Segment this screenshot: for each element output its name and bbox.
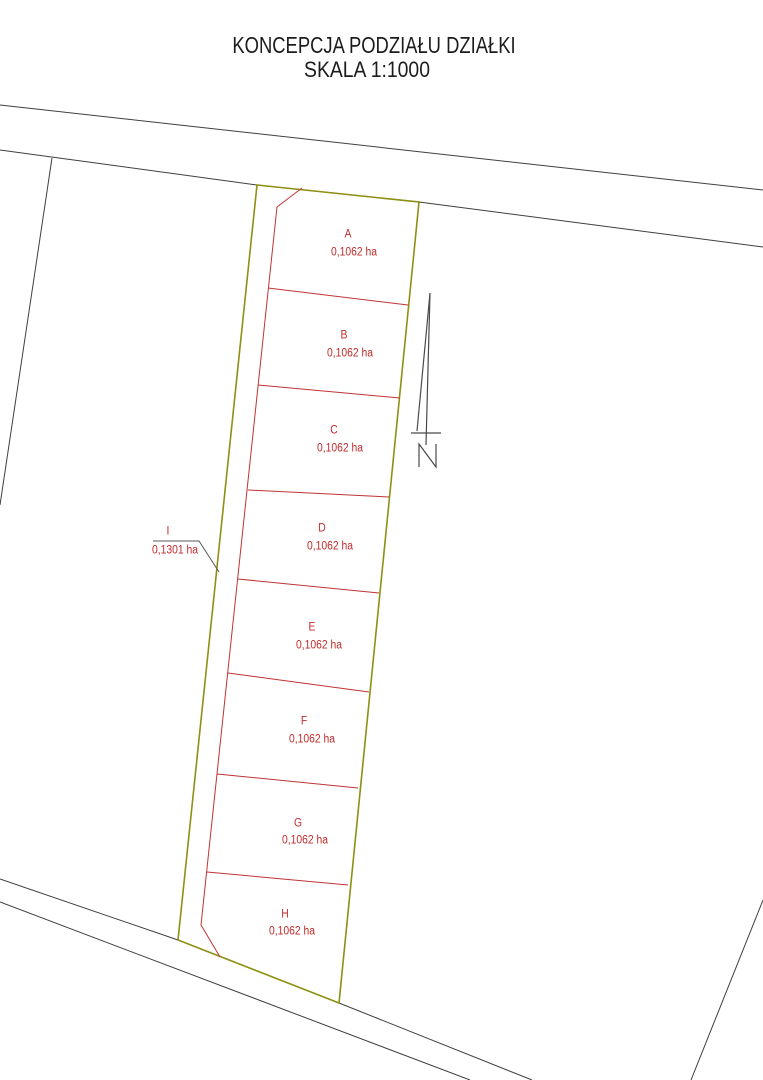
road-south-upper-edge — [0, 879, 532, 1080]
divider-c-d — [248, 490, 389, 497]
parcel-i-letter-label: I — [167, 527, 170, 538]
drawing-canvas — [0, 0, 763, 1080]
road-south-lower-edge — [0, 902, 470, 1080]
divider-a-b — [268, 288, 408, 305]
north-label-n — [419, 444, 436, 467]
west-neighbor-boundary — [0, 158, 52, 505]
parcel-h-letter-label: H — [281, 910, 288, 921]
parcel-i-area-label: 0,1301 ha — [152, 546, 198, 557]
parcel-e-area-label: 0,1062 ha — [296, 641, 342, 652]
parcel-f-letter-label: F — [301, 717, 307, 728]
divider-g-h — [207, 872, 348, 885]
divider-b-c — [258, 385, 400, 398]
parcel-f-area-label: 0,1062 ha — [289, 735, 335, 746]
parcel-d-letter-label: D — [318, 524, 325, 535]
southeast-boundary — [691, 900, 763, 1080]
parcel-a-letter-label: A — [345, 230, 352, 241]
parcel-g-area-label: 0,1062 ha — [282, 836, 328, 847]
parcel-a-area-label: 0,1062 ha — [331, 248, 377, 259]
parcel-c-area-label: 0,1062 ha — [317, 444, 363, 455]
parcel-d-area-label: 0,1062 ha — [307, 542, 353, 553]
page-title: KONCEPCJA PODZIAŁU DZIAŁKI — [232, 32, 515, 59]
parcel-e-letter-label: E — [309, 623, 316, 634]
parcel-b-area-label: 0,1062 ha — [327, 349, 373, 360]
divider-e-f — [228, 673, 369, 692]
road-north-upper-edge — [0, 105, 763, 190]
parcel-c-letter-label: C — [330, 426, 337, 437]
scale-label: SKALA 1:1000 — [304, 57, 430, 83]
parcel-h-area-label: 0,1062 ha — [269, 927, 315, 938]
divider-f-g — [217, 774, 358, 788]
parcel-g-letter-label: G — [294, 819, 302, 830]
parcel-b-letter-label: B — [341, 331, 348, 342]
divider-d-e — [238, 579, 379, 593]
drawing-sheet: KONCEPCJA PODZIAŁU DZIAŁKI SKALA 1:1000 … — [0, 0, 763, 1080]
